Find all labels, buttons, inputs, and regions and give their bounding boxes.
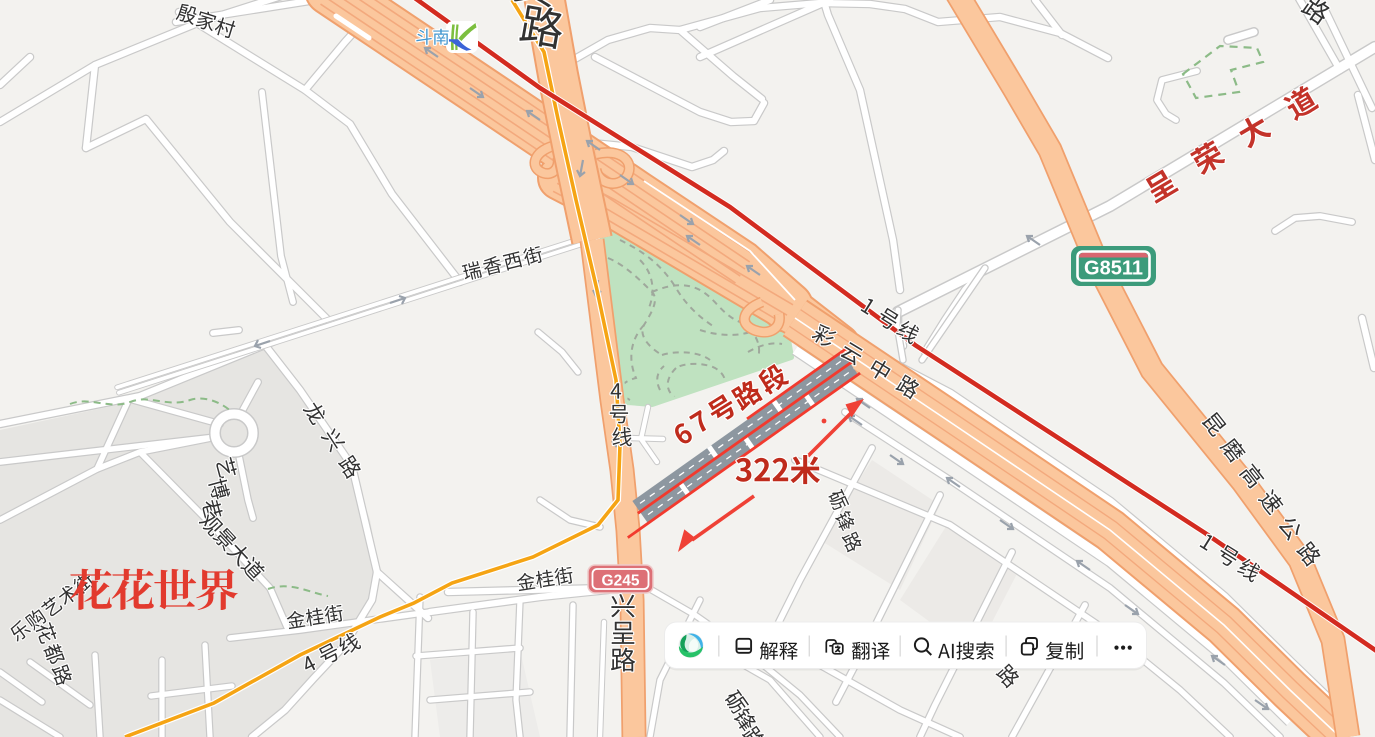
svg-text:G8511: G8511: [1084, 258, 1143, 280]
svg-text:G245: G245: [602, 573, 640, 590]
